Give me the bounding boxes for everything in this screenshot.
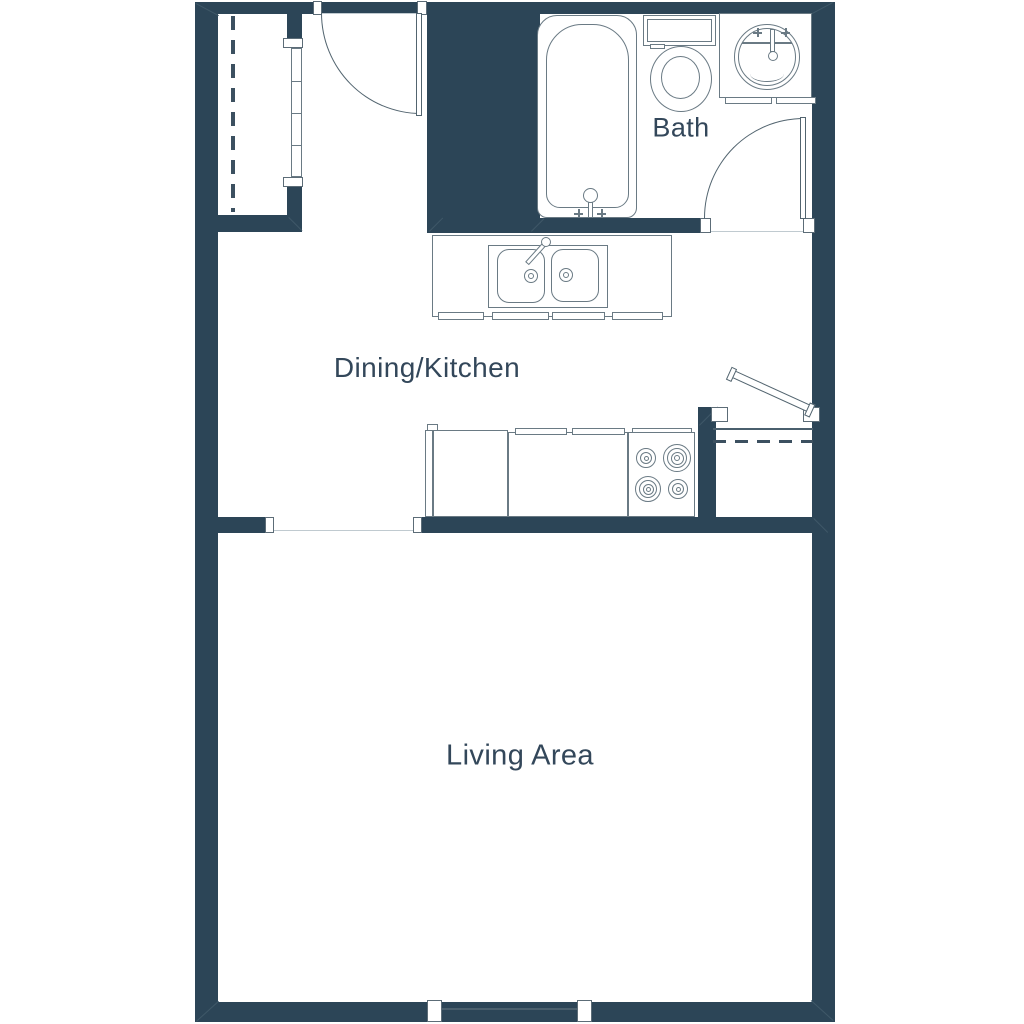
wall-closet-bottom	[195, 215, 302, 232]
refrigerator-handle	[427, 424, 438, 431]
base-cabinet-mark	[438, 312, 484, 320]
jamb-divider-left	[265, 517, 274, 533]
jamb-window-right	[577, 1000, 592, 1022]
bathroom-door-swing-arc	[704, 118, 804, 218]
sink-hot-marker	[753, 28, 762, 37]
base-cabinet-mark	[552, 312, 605, 320]
jamb-window-left	[427, 1000, 442, 1022]
kitchen-counter-mid	[508, 432, 628, 517]
toilet-flush-handle	[650, 44, 665, 49]
pantry-door-panel	[729, 369, 812, 413]
refrigerator-door-line	[432, 431, 434, 516]
entry-door-panel	[416, 13, 422, 116]
pantry-shelf-dashed-line	[713, 440, 813, 443]
wall-divider-left-stub	[195, 517, 265, 533]
wall-right	[812, 2, 835, 1022]
closet-sliding-door	[291, 48, 302, 177]
bathroom-sink-drain	[768, 51, 778, 61]
sink-cold-marker	[781, 28, 790, 37]
bath-threshold-line	[711, 231, 803, 232]
tub-faucet-stem	[588, 202, 593, 218]
toilet-bowl-inner	[661, 56, 700, 99]
sliding-door-panel-divider	[292, 81, 301, 82]
window-glass-line	[442, 1008, 577, 1010]
sink-drain-right-inner	[563, 272, 569, 278]
refrigerator	[425, 430, 508, 517]
room-label-bath: Bath	[652, 113, 709, 144]
wall-closet-stub-top	[287, 14, 302, 40]
base-cabinet-mark	[492, 312, 549, 320]
floor-plan: Bath Dining/Kitchen Living Area	[0, 0, 1024, 1024]
stove-burner	[676, 487, 681, 492]
bathroom-door-panel	[800, 117, 806, 219]
bathroom-faucet-stem	[770, 29, 775, 52]
divider-opening-line	[274, 530, 413, 531]
jamb-closet-top	[283, 38, 303, 48]
wall-divider-main	[422, 517, 835, 533]
stove-back-edge	[632, 428, 692, 433]
jamb-pantry-left	[711, 407, 728, 422]
base-cabinet-mark	[612, 312, 663, 320]
stove	[628, 432, 695, 517]
pantry-door-end-cap	[726, 366, 737, 381]
sliding-door-panel-divider	[292, 113, 301, 114]
closet-rod-dashed-line	[231, 16, 235, 212]
entry-door-swing-arc	[321, 13, 421, 114]
stove-burner	[644, 456, 649, 461]
jamb-divider-right	[413, 517, 422, 533]
wall-bath-bottom	[530, 218, 700, 233]
tub-hot-marker	[574, 209, 583, 218]
vanity-toe-kick	[776, 97, 816, 104]
counter-edge-mark	[572, 428, 625, 435]
sink-drain-left-inner	[528, 273, 534, 279]
pantry-shelf-front-edge	[713, 428, 813, 430]
toilet-tank-lid	[647, 19, 712, 42]
jamb-closet-bottom	[283, 177, 303, 187]
stove-burner	[646, 487, 651, 492]
kitchen-faucet-knob	[541, 237, 551, 247]
tub-faucet-knob	[583, 188, 598, 203]
room-label-dining-kitchen: Dining/Kitchen	[334, 352, 520, 384]
wall-left	[195, 2, 218, 1022]
bathtub-basin	[546, 24, 629, 208]
bathroom-sink-back-edge	[742, 42, 792, 44]
wall-bottom	[195, 1002, 835, 1022]
stove-burner	[674, 455, 680, 461]
sliding-door-panel-divider	[292, 145, 301, 146]
jamb-bathdoor-left	[700, 218, 711, 233]
vanity-toe-kick	[725, 97, 772, 104]
bathroom-sink-front-curve	[750, 66, 784, 82]
tub-cold-marker	[597, 209, 606, 218]
room-label-living-area: Living Area	[446, 740, 594, 773]
wall-entry-mass	[427, 14, 540, 233]
jamb-bathdoor-right	[803, 218, 815, 233]
counter-edge-mark	[515, 428, 567, 435]
wall-closet-stub-bottom	[287, 186, 302, 216]
